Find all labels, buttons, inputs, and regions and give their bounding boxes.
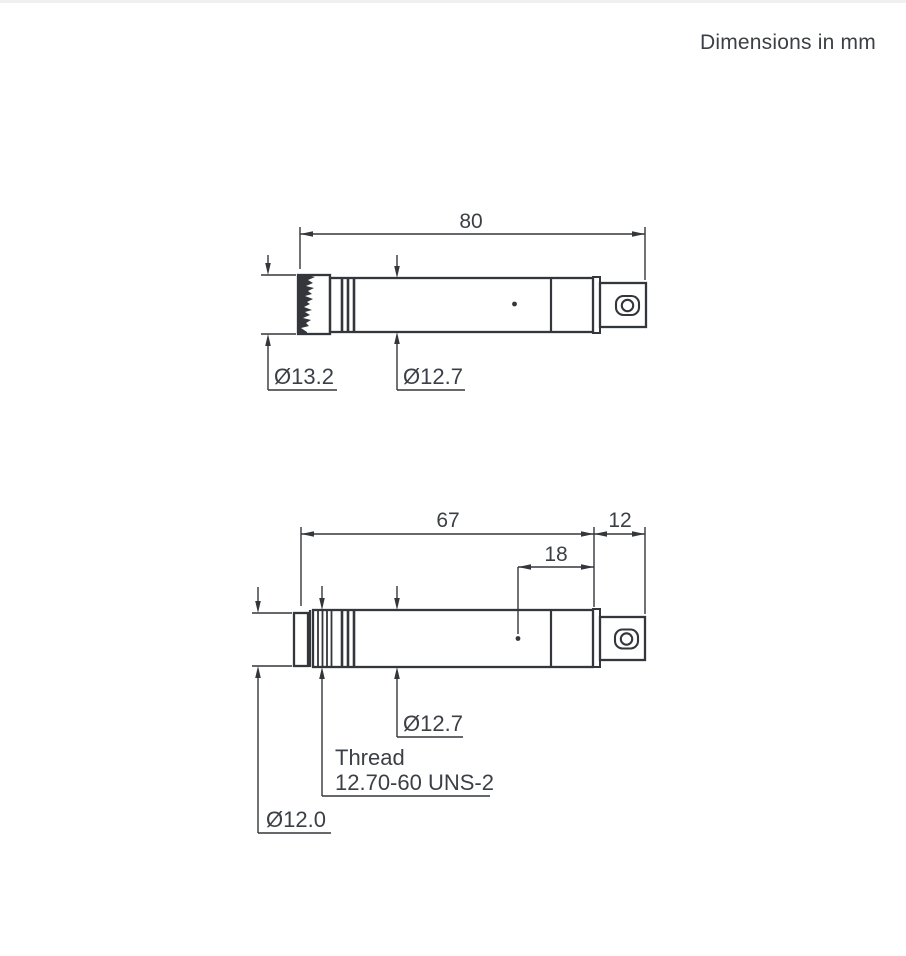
- arrowhead: [394, 332, 400, 344]
- arrowhead: [632, 231, 645, 237]
- arrowhead: [394, 667, 400, 679]
- mic-with-grid-outline: [298, 275, 646, 334]
- grid-knurl-texture: [298, 275, 315, 334]
- view-without-grid: 67 12 18: [252, 509, 645, 833]
- dim-overall-length-label: 80: [459, 210, 482, 233]
- dim-front-diameter: Ø12.0: [252, 587, 331, 833]
- technical-drawing: 80: [0, 0, 906, 956]
- dim-overall-length: 80: [300, 210, 645, 280]
- arrowhead: [301, 531, 314, 537]
- arrowhead: [394, 598, 400, 610]
- arrowhead: [265, 263, 271, 275]
- arrowhead: [319, 598, 325, 610]
- dim-body-diameter-label: Ø12.7: [403, 364, 463, 389]
- drawing-canvas: Dimensions in mm 80: [0, 0, 906, 956]
- dim-body-length-label: 67: [436, 509, 459, 532]
- view-with-grid: 80: [261, 210, 646, 390]
- dim-vent-distance-label: 18: [544, 543, 567, 566]
- arrowhead: [394, 266, 400, 278]
- arrowhead: [581, 531, 594, 537]
- thread-label-line1: Thread: [335, 745, 405, 770]
- vent-hole-dot: [516, 636, 521, 641]
- dim-vent-distance: 18: [518, 543, 594, 634]
- dim-connector-length: 12: [594, 509, 645, 614]
- arrowhead: [300, 231, 313, 237]
- mic-without-grid-outline: [294, 609, 645, 667]
- arrowhead: [518, 564, 531, 570]
- mic-body: [330, 278, 593, 332]
- connector-pin-icon: [621, 633, 632, 644]
- arrowhead: [255, 601, 261, 613]
- dim-front-diameter-label: Ø12.0: [266, 807, 326, 832]
- dim-body-diameter-label: Ø12.7: [403, 711, 463, 736]
- arrowhead: [255, 666, 261, 678]
- dim-body-diameter: Ø12.7: [394, 255, 465, 390]
- arrowhead: [319, 667, 325, 679]
- thread-label-line2: 12.70-60 UNS-2: [335, 770, 494, 795]
- arrowhead: [594, 531, 607, 537]
- front-cap: [294, 613, 308, 666]
- arrowhead: [581, 564, 594, 570]
- vent-hole-dot: [512, 302, 517, 307]
- arrowhead: [632, 531, 645, 537]
- dim-thread: Thread 12.70-60 UNS-2: [319, 586, 494, 796]
- dim-grid-diameter-label: Ø13.2: [274, 364, 334, 389]
- arrowhead: [265, 334, 271, 346]
- dim-body-diameter: Ø12.7: [394, 586, 463, 737]
- dim-connector-length-label: 12: [608, 509, 631, 532]
- connector-pin-icon: [622, 300, 633, 311]
